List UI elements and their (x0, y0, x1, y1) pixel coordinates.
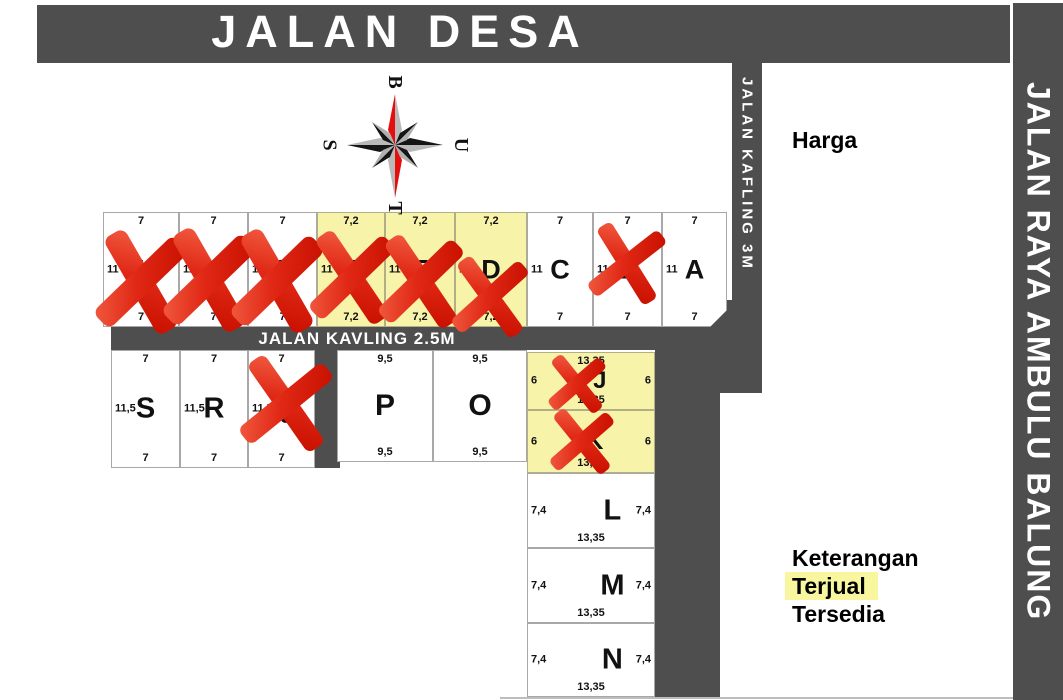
plot-M-dim-left: 7,4 (531, 580, 546, 591)
road-jalan-desa-label: JALAN DESA (211, 6, 589, 58)
compass-letter-bottom: T (385, 201, 405, 214)
plot-M: M13,357,47,4 (527, 548, 655, 623)
plot-L-letter: L (604, 496, 622, 525)
road-jalan-raya-label: JALAN RAYA AMBULU BALUNG (1020, 82, 1057, 621)
road-jalan-kafling-label: JALAN KAFLING 3M (739, 77, 756, 271)
plot-P: P9,59,5 (337, 350, 433, 462)
plot-C-dim-top: 7 (557, 216, 563, 227)
road-jalan-raya-ambulu-balung: JALAN RAYA AMBULU BALUNG (1013, 3, 1063, 700)
plot-M-letter: M (600, 571, 624, 600)
plot-N-dim-right: 7,4 (636, 655, 651, 666)
plot-S-letter: S (136, 395, 155, 424)
road-junction (655, 350, 762, 393)
sold-cross-K (541, 400, 623, 482)
site-plan: JALAN DESA JALAN RAYA AMBULU BALUNG JALA… (0, 0, 1063, 700)
legend: Keterangan Terjual Tersedia (792, 544, 919, 628)
plot-K-dim-right: 6 (645, 436, 651, 447)
compass-letter-top: B (385, 75, 405, 88)
plot-P-dim-top: 9,5 (377, 354, 392, 365)
plot-J-dim-right: 6 (645, 376, 651, 387)
sold-cross-B (575, 211, 679, 315)
plot-S-dim-top: 7 (142, 354, 148, 365)
plot-N-dim-left: 7,4 (531, 655, 546, 666)
compass-letter-right: U (451, 138, 471, 152)
plot-R-dim-top: 7 (211, 354, 217, 365)
plot-O-dim-top: 9,5 (472, 354, 487, 365)
sold-cross-D (439, 246, 540, 347)
plot-P-letter: P (375, 391, 395, 421)
plot-A-dim-top: 7 (691, 216, 697, 227)
compass-rose: B U T S (320, 70, 470, 220)
plot-B-dim-bottom: 7 (624, 312, 630, 323)
plot-L-dim-right: 7,4 (636, 505, 651, 516)
price-heading: Harga (792, 127, 857, 154)
plot-R-letter: R (204, 395, 225, 424)
compass-letter-left: S (320, 139, 340, 150)
plot-A-letter: A (685, 256, 705, 283)
plot-S-dim-bottom: 7 (142, 453, 148, 464)
sold-cross-Q (225, 342, 347, 464)
plot-M-dim-bottom: 13,35 (577, 608, 605, 619)
plot-R-dim-bottom: 7 (211, 453, 217, 464)
plot-D-dim-top: 7,2 (483, 216, 498, 227)
plot-A-dim-bottom: 7 (691, 312, 697, 323)
road-jalan-desa: JALAN DESA (37, 5, 1010, 63)
plot-S: S7711,5 (111, 350, 180, 468)
plot-P-dim-bottom: 9,5 (377, 447, 392, 458)
legend-available-label: Tersedia (792, 600, 919, 628)
plot-L-dim-bottom: 13,35 (577, 533, 605, 544)
plot-O: O9,59,5 (433, 350, 527, 462)
plot-J-dim-left: 6 (531, 376, 537, 387)
road-mid-vertical (655, 393, 720, 697)
plot-O-dim-bottom: 9,5 (472, 447, 487, 458)
plot-O-letter: O (468, 391, 491, 421)
plot-S-dim-left: 11,5 (115, 404, 136, 415)
plot-L-dim-left: 7,4 (531, 505, 546, 516)
compass-star (338, 88, 452, 202)
plot-K-dim-left: 6 (531, 436, 537, 447)
legend-heading: Keterangan (792, 544, 919, 572)
plot-M-dim-right: 7,4 (636, 580, 651, 591)
plot-N-dim-bottom: 13,35 (577, 682, 605, 693)
plot-C-letter: C (550, 256, 570, 283)
sold-cross-bar (586, 229, 667, 298)
legend-sold-label: Terjual (785, 572, 878, 600)
plot-N: N13,357,47,4 (527, 623, 655, 697)
plot-C-dim-bottom: 7 (557, 312, 563, 323)
bottom-edge-line (500, 697, 1013, 699)
plot-L: L13,357,47,4 (527, 473, 655, 548)
plot-R-dim-left: 11,5 (184, 404, 205, 415)
plot-N-letter: N (602, 646, 623, 675)
